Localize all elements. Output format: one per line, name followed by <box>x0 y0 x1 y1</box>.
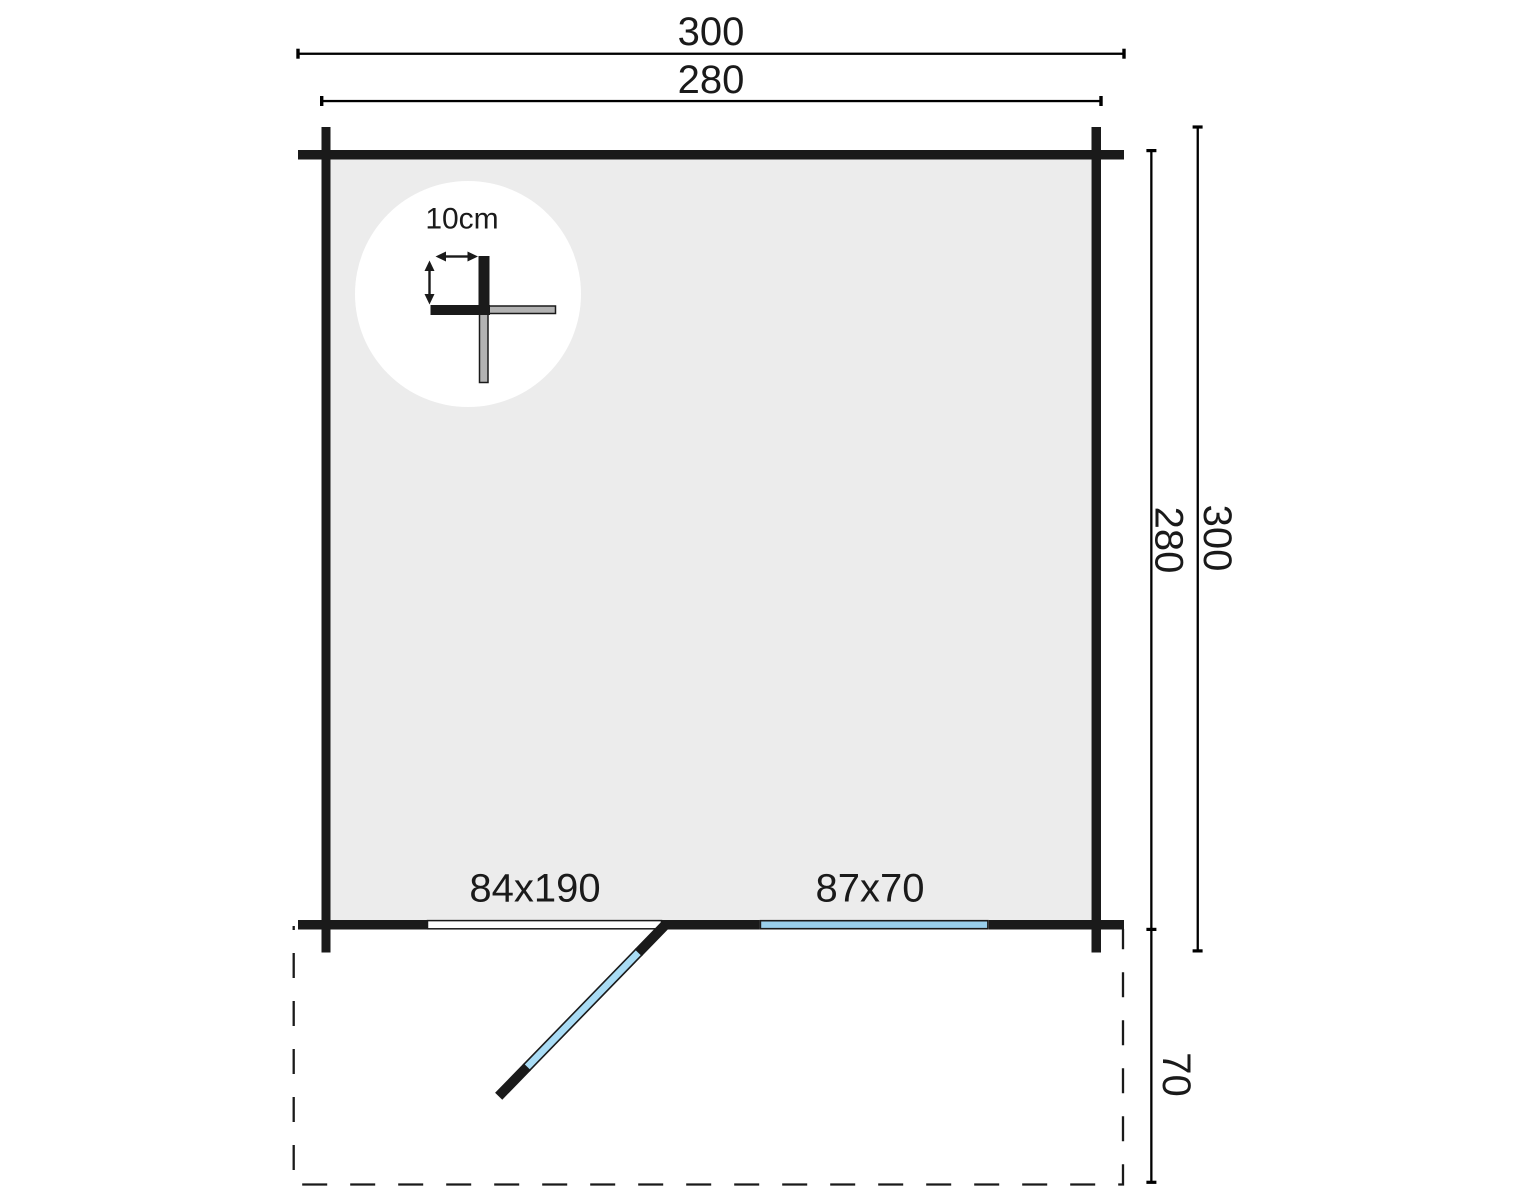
svg-text:300: 300 <box>678 10 745 54</box>
svg-text:87x70: 87x70 <box>816 867 925 911</box>
svg-text:280: 280 <box>1147 507 1191 574</box>
svg-text:300: 300 <box>1195 505 1239 572</box>
svg-text:10cm: 10cm <box>425 203 498 236</box>
svg-text:280: 280 <box>678 58 745 102</box>
svg-text:84x190: 84x190 <box>469 867 600 911</box>
svg-text:70: 70 <box>1154 1052 1198 1097</box>
